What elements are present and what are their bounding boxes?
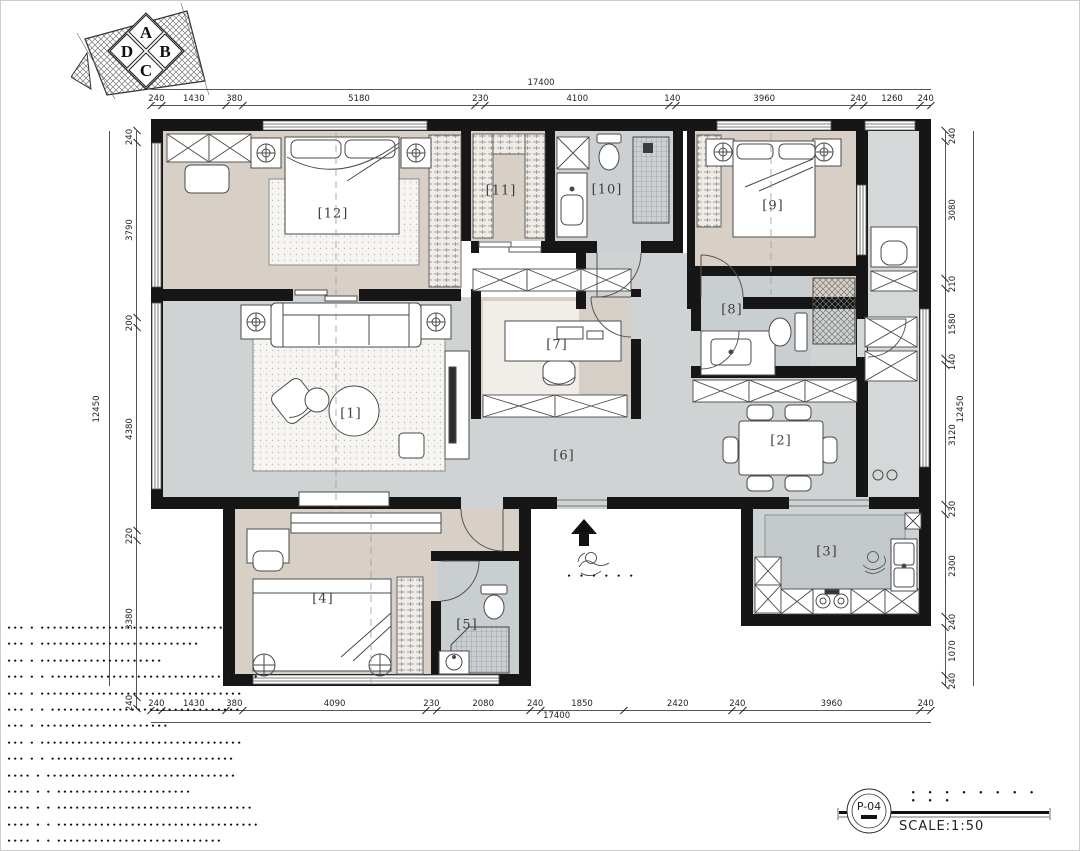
title-block: P-04 • • • • • • • • • • • SCALE:1:50 — [837, 783, 1053, 845]
room-label-bath5: [5] — [456, 618, 477, 633]
dimension-segment: 240 — [530, 698, 541, 710]
room-label-kitchen: [3] — [816, 545, 837, 560]
room-label-bedroom9: [9] — [762, 199, 783, 214]
dimension-segment: 3790 — [123, 142, 136, 318]
note-line: ••• • ••••••••••••••••••••• — [7, 718, 257, 734]
room-label-closet11: [11] — [486, 184, 517, 199]
room-label-living: [1] — [340, 407, 361, 422]
dimension-segment: 210 — [946, 279, 959, 288]
note-line: •••• • • •••••••••••••••••••••••••••••••… — [7, 817, 257, 833]
dim-overall-bottom: 17400 — [151, 722, 931, 723]
compass-letter-a: A — [140, 23, 153, 42]
dim-overall-top: 17400 — [151, 89, 931, 90]
dimension-segment: 230 — [475, 93, 485, 105]
note-line: ••• • • ••••••••••••••••••••••••••••••• — [7, 702, 257, 718]
room-label-master12: [12] — [318, 207, 349, 222]
sheet-number: P-04 — [857, 800, 881, 813]
dimension-segment: 240 — [732, 698, 743, 710]
dimension-segment: 240 — [123, 131, 136, 142]
dimension-segment: 200 — [123, 318, 136, 327]
dimension-segment: 240 — [946, 131, 959, 142]
note-line: ••• • ••••••••••••••••••••••••••••••••• — [7, 686, 257, 702]
dimension-segment: 1430 — [162, 93, 226, 105]
note-line: ••• • ••••••••••••••••••••••••••••••• — [7, 620, 257, 636]
note-line: •••• • • •••••••••••••••••••••• — [7, 784, 257, 800]
dimension-segment: 230 — [426, 698, 436, 710]
dimension-segment: 380 — [226, 93, 243, 105]
scale-label: SCALE:1:50 — [899, 819, 984, 834]
note-line: ••• • ••••••••••••••••••••••••••••••••• — [7, 735, 257, 751]
dimension-segment: 2080 — [437, 698, 530, 710]
dimension-segment: 3960 — [676, 93, 854, 105]
dimension-segment: 4380 — [123, 327, 136, 530]
dimension-segment: 240 — [853, 93, 864, 105]
dimension-segment: 5180 — [243, 93, 475, 105]
dimension-segment: 3960 — [743, 698, 921, 710]
entry-marker — [571, 519, 609, 576]
dim-chain-bottom: 2401430380409023020802401850242024039602… — [151, 698, 931, 711]
dimension-segment: 240 — [151, 93, 162, 105]
room-label-bedroom4: [4] — [312, 592, 333, 607]
compass-letter-d: D — [121, 42, 133, 61]
dim-overall-right: 12450 — [973, 131, 974, 686]
dimension-segment: 1580 — [946, 288, 959, 358]
compass-letter-b: B — [159, 42, 170, 61]
note-line: ••• • •••••••••••••••••••• — [7, 653, 257, 669]
dimension-segment: 230 — [946, 504, 959, 514]
dimension-segment: 240 — [920, 93, 931, 105]
room-label-bath10: [10] — [592, 183, 623, 198]
room-label-study: [7] — [546, 338, 567, 353]
compass-letter-c: C — [140, 61, 152, 80]
dimension-segment: 220 — [123, 531, 136, 541]
dimension-segment: 240 — [946, 675, 959, 686]
dimension-segment: 1260 — [864, 93, 920, 105]
dimension-segment: 4090 — [243, 698, 426, 710]
title-dots: • • • • • • • • • • • — [911, 789, 1053, 805]
notes-list: ••• • ••••••••••••••••••••••••••••••••••… — [7, 620, 257, 850]
note-line: ••• • • •••••••••••••••••••••••••••••• — [7, 751, 257, 767]
dimension-segment: 240 — [946, 617, 959, 628]
dimension-segment: 4100 — [485, 93, 669, 105]
dimension-segment: 1850 — [541, 698, 624, 710]
note-line: •••• • • •••••••••••••••••••••••••••••••… — [7, 800, 257, 816]
note-line: ••• • • ••••••••••••••••••••••••••••••••… — [7, 669, 257, 685]
dimension-segment: 240 — [920, 698, 931, 710]
orientation-compass: A B C D — [71, 3, 221, 99]
note-line: ••• • •••••••••••••••••••••••••• — [7, 636, 257, 652]
floor-plan-sheet: A B C D [1] [2] [3] [4] [5] [6] [7] [8] … — [0, 0, 1080, 851]
dimension-segment: 2300 — [946, 514, 959, 617]
entry-dotted-line: • • • • • • — [567, 572, 636, 580]
room-label-bath8: [8] — [721, 303, 742, 318]
dimension-segment: 3120 — [946, 365, 959, 504]
room-label-corridor: [6] — [553, 449, 574, 464]
dim-overall-left: 12450 — [109, 131, 110, 686]
note-line: •••• • ••••••••••••••••••••••••••••••• — [7, 768, 257, 784]
dimension-segment: 3080 — [946, 142, 959, 279]
dim-chain-top: 24014303805180230410014039602401260240 — [151, 93, 931, 106]
dimension-segment: 2420 — [624, 698, 732, 710]
entry-arrow-icon — [571, 519, 597, 546]
note-line: •••• • • ••••••••••••••••••••••••••• — [7, 833, 257, 849]
room-label-dining: [2] — [770, 434, 791, 449]
dimension-segment: 1070 — [946, 628, 959, 676]
